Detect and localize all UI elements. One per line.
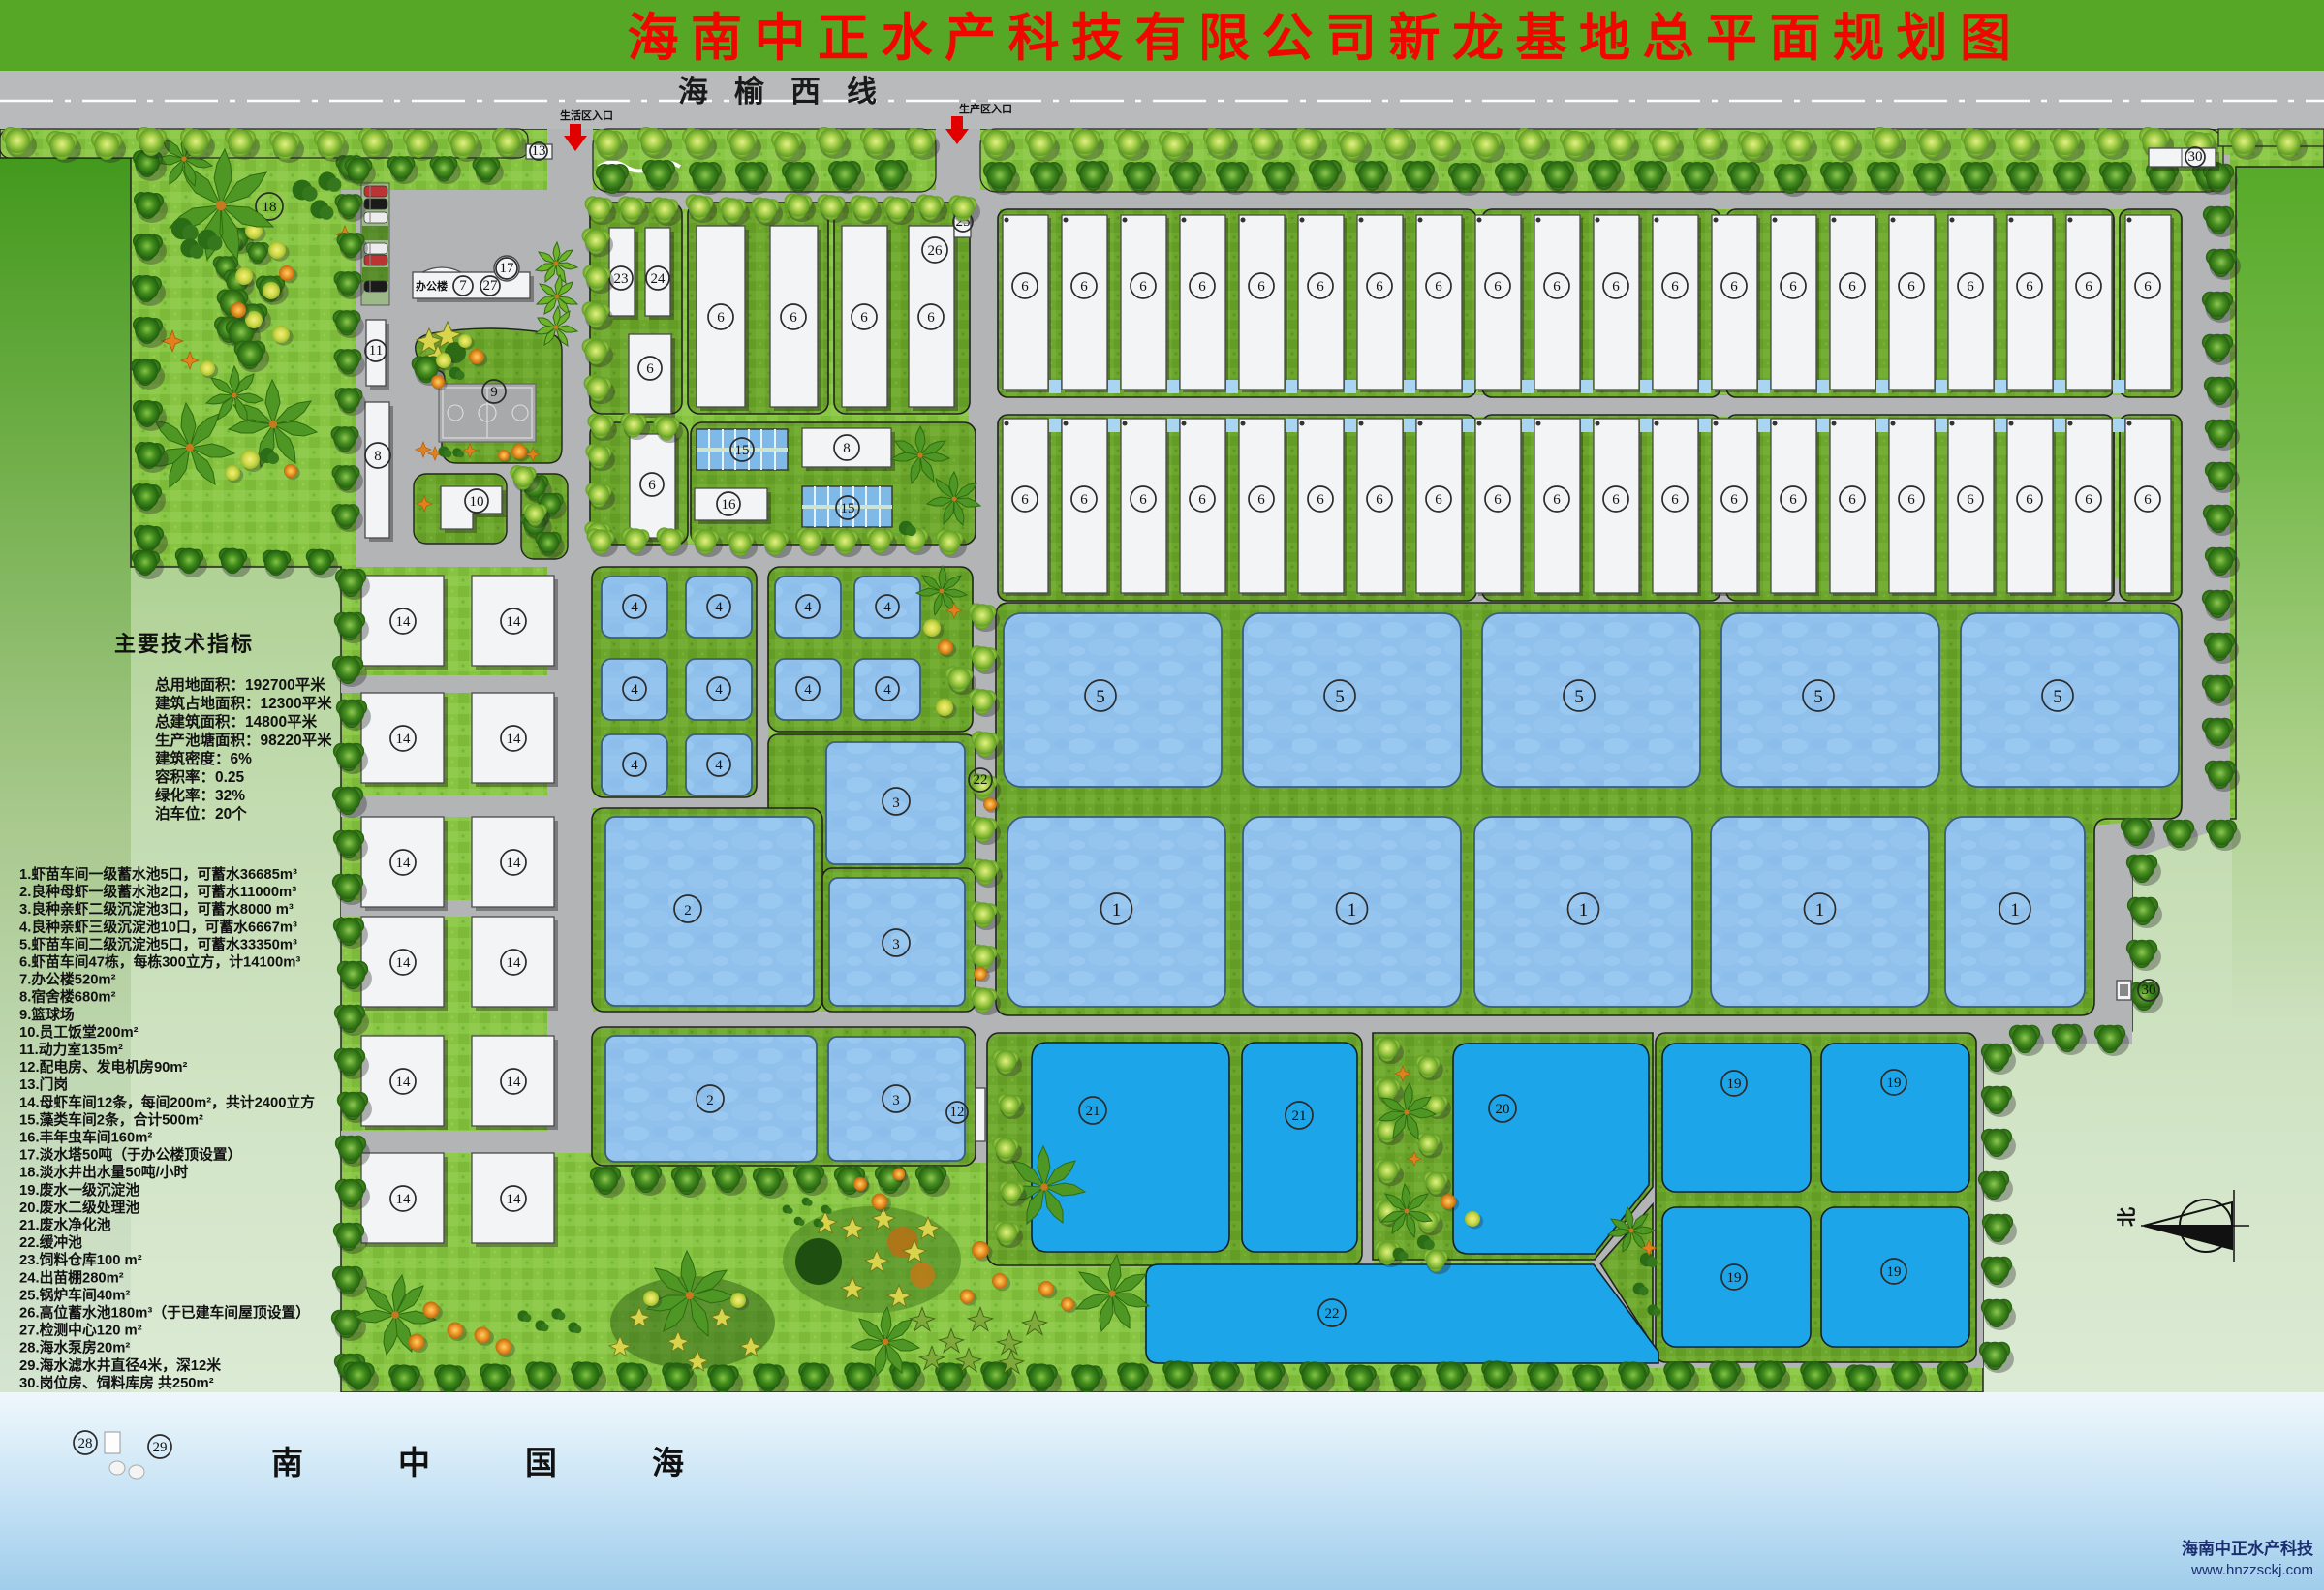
svg-text:15: 15 [841, 501, 855, 516]
svg-text:14: 14 [396, 614, 412, 630]
svg-text:6: 6 [1907, 279, 1915, 295]
svg-text:26: 26 [928, 243, 944, 259]
svg-text:5: 5 [2053, 687, 2062, 707]
svg-text:6: 6 [1080, 279, 1088, 295]
svg-text:南中国海: 南中国海 [271, 1445, 779, 1481]
svg-text:6: 6 [1317, 279, 1324, 295]
svg-text:13: 13 [532, 143, 546, 159]
svg-text:6: 6 [1553, 492, 1561, 508]
svg-text:4: 4 [804, 682, 812, 698]
svg-text:14: 14 [396, 856, 412, 871]
svg-text:15: 15 [735, 443, 750, 458]
svg-text:6: 6 [2144, 492, 2152, 508]
svg-text:6: 6 [1198, 492, 1206, 508]
svg-text:6: 6 [1257, 492, 1265, 508]
svg-text:6: 6 [927, 310, 935, 326]
svg-text:19: 19 [1727, 1076, 1742, 1092]
svg-text:6: 6 [648, 478, 656, 493]
svg-text:14: 14 [507, 856, 522, 871]
svg-text:8: 8 [374, 449, 382, 464]
svg-text:30: 30 [2188, 149, 2203, 165]
svg-text:生活区入口: 生活区入口 [560, 109, 613, 122]
svg-text:6: 6 [717, 310, 725, 326]
svg-text:6: 6 [2144, 279, 2152, 295]
svg-text:16: 16 [722, 497, 737, 513]
svg-text:6: 6 [1612, 279, 1620, 295]
svg-text:1: 1 [1579, 900, 1589, 920]
svg-text:办公楼: 办公楼 [416, 279, 448, 293]
svg-text:6: 6 [1671, 492, 1679, 508]
svg-text:19: 19 [1887, 1076, 1902, 1091]
svg-text:5: 5 [1096, 687, 1105, 707]
svg-text:6: 6 [646, 361, 654, 377]
svg-text:4: 4 [883, 600, 891, 615]
svg-text:主要技术指标: 主要技术指标 [114, 632, 254, 656]
svg-text:6: 6 [1730, 492, 1738, 508]
svg-text:23: 23 [614, 271, 629, 287]
svg-text:2: 2 [684, 903, 692, 919]
svg-text:www.hnzzsckj.com: www.hnzzsckj.com [2190, 1562, 2313, 1578]
svg-text:27: 27 [483, 278, 499, 294]
svg-text:6: 6 [1612, 492, 1620, 508]
svg-text:14: 14 [507, 614, 522, 630]
svg-text:19: 19 [1887, 1264, 1902, 1280]
svg-text:1: 1 [1112, 900, 1122, 920]
svg-text:6: 6 [1730, 279, 1738, 295]
svg-text:6: 6 [1848, 492, 1856, 508]
svg-text:6: 6 [1257, 279, 1265, 295]
svg-text:1: 1 [2010, 900, 2020, 920]
svg-text:14: 14 [507, 1075, 522, 1090]
svg-text:30: 30 [2142, 982, 2156, 998]
svg-text:海南中正水产科技: 海南中正水产科技 [2182, 1539, 2314, 1558]
svg-text:3: 3 [892, 937, 900, 952]
svg-text:19: 19 [1727, 1270, 1742, 1286]
svg-text:北: 北 [2116, 1207, 2138, 1227]
svg-text:14: 14 [396, 1075, 412, 1090]
svg-text:6: 6 [1139, 279, 1147, 295]
svg-text:6: 6 [2026, 492, 2033, 508]
svg-text:6: 6 [1435, 492, 1442, 508]
svg-text:14: 14 [396, 1192, 412, 1207]
svg-text:4: 4 [631, 758, 638, 773]
svg-text:6: 6 [1671, 279, 1679, 295]
svg-text:6: 6 [1376, 492, 1383, 508]
svg-text:6: 6 [2085, 492, 2092, 508]
svg-text:22: 22 [974, 772, 988, 788]
svg-text:6: 6 [1080, 492, 1088, 508]
svg-text:24: 24 [651, 271, 666, 287]
svg-text:29: 29 [153, 1440, 168, 1455]
svg-text:10: 10 [470, 494, 484, 510]
svg-text:4: 4 [715, 600, 723, 615]
svg-text:4: 4 [804, 600, 812, 615]
svg-text:6: 6 [1967, 492, 1974, 508]
svg-text:3: 3 [892, 1093, 900, 1108]
svg-text:6: 6 [1848, 279, 1856, 295]
svg-text:5: 5 [1813, 687, 1823, 707]
svg-text:6: 6 [860, 310, 868, 326]
svg-text:5: 5 [1335, 687, 1345, 707]
svg-text:4: 4 [631, 600, 638, 615]
svg-text:1: 1 [1815, 900, 1825, 920]
svg-text:1: 1 [1348, 900, 1357, 920]
svg-text:7: 7 [459, 278, 467, 294]
svg-text:6: 6 [790, 310, 797, 326]
svg-text:6: 6 [1376, 279, 1383, 295]
svg-text:20: 20 [1496, 1102, 1510, 1117]
svg-text:9: 9 [490, 385, 498, 400]
svg-text:5: 5 [1574, 687, 1584, 707]
svg-text:6: 6 [1198, 279, 1206, 295]
svg-text:6: 6 [2026, 279, 2033, 295]
svg-text:6: 6 [1789, 279, 1797, 295]
svg-text:6: 6 [1021, 492, 1029, 508]
svg-text:4: 4 [715, 682, 723, 698]
svg-text:6: 6 [1494, 492, 1502, 508]
svg-text:6: 6 [1907, 492, 1915, 508]
svg-text:11: 11 [369, 343, 383, 359]
svg-text:14: 14 [396, 955, 412, 971]
svg-text:6: 6 [1021, 279, 1029, 295]
svg-text:3: 3 [892, 795, 900, 811]
svg-text:21: 21 [1292, 1108, 1307, 1124]
svg-text:14: 14 [507, 1192, 522, 1207]
svg-text:海南中正水产科技有限公司新龙基地总平面规划图: 海南中正水产科技有限公司新龙基地总平面规划图 [628, 10, 2024, 67]
svg-text:6: 6 [1789, 492, 1797, 508]
svg-text:生产区入口: 生产区入口 [959, 102, 1012, 115]
svg-text:6: 6 [2085, 279, 2092, 295]
svg-text:14: 14 [507, 732, 522, 747]
svg-text:6: 6 [1967, 279, 1974, 295]
svg-text:17: 17 [500, 261, 515, 276]
svg-text:6: 6 [1435, 279, 1442, 295]
svg-text:4: 4 [715, 758, 723, 773]
svg-text:4: 4 [631, 682, 638, 698]
svg-text:6: 6 [1553, 279, 1561, 295]
svg-text:14: 14 [507, 955, 522, 971]
svg-text:2: 2 [706, 1093, 714, 1108]
svg-text:18: 18 [263, 200, 277, 215]
svg-text:14: 14 [396, 732, 412, 747]
svg-text:6: 6 [1317, 492, 1324, 508]
svg-text:4: 4 [883, 682, 891, 698]
svg-text:海榆西线: 海榆西线 [678, 75, 903, 109]
svg-text:6: 6 [1139, 492, 1147, 508]
svg-text:21: 21 [1086, 1104, 1100, 1119]
svg-text:22: 22 [1325, 1306, 1340, 1322]
svg-text:28: 28 [78, 1436, 93, 1451]
svg-text:8: 8 [843, 441, 851, 456]
svg-text:12: 12 [950, 1105, 965, 1120]
svg-text:6: 6 [1494, 279, 1502, 295]
